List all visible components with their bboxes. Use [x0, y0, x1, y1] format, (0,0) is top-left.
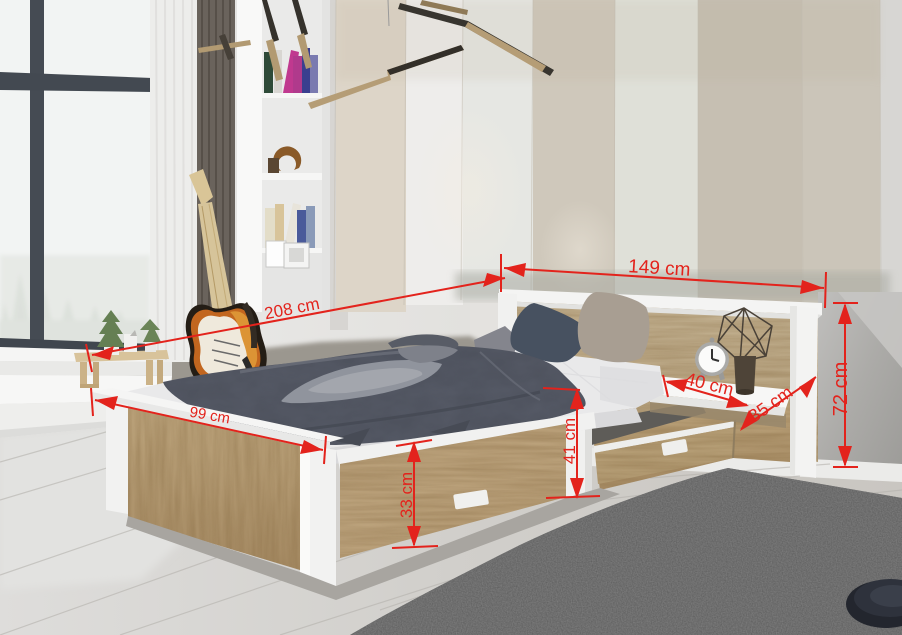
svg-text:41 cm: 41 cm [560, 418, 579, 464]
svg-text:149 cm: 149 cm [628, 256, 691, 281]
svg-text:72 cm: 72 cm [830, 362, 852, 416]
svg-text:33 cm: 33 cm [397, 472, 416, 518]
